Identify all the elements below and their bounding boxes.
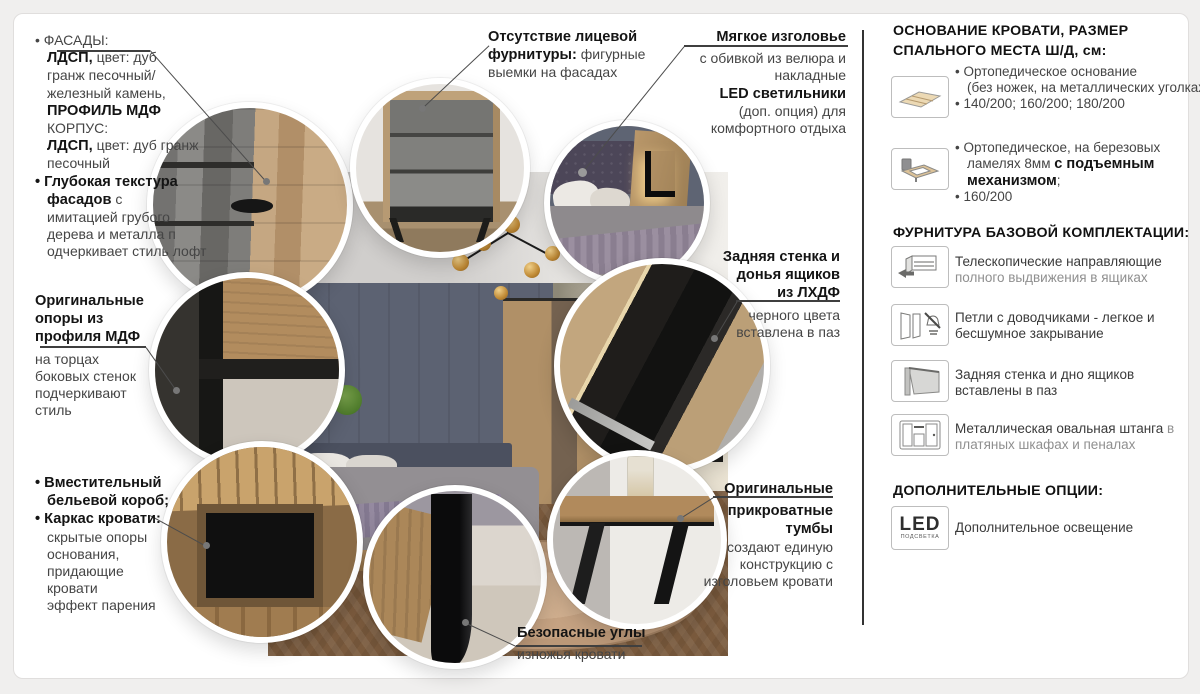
callout-dot [711,335,718,342]
product-infographic-page: • ФАСАДЫ:ЛДСП, цвет: дубгранж песочный/ж… [0,0,1200,694]
led-label: LED [900,516,941,534]
callout-dot [203,542,210,549]
photo-detail [383,91,501,222]
lift-bed-icon [891,148,949,190]
chandelier-icon [524,262,540,278]
panel-heading-line: СПАЛЬНОГО МЕСТА Ш/Д, см: [893,42,1128,62]
panel-heading-line: ОСНОВАНИЕ КРОВАТИ, РАЗМЕР [893,22,1128,42]
photo-detail [431,494,472,666]
panel-heading-hardware: ФУРНИТУРА БАЗОВОЙ КОМПЛЕКТАЦИИ: [893,224,1189,244]
photo-detail [645,151,674,197]
photo-detail [197,504,322,607]
callout-dot [578,168,587,177]
callout-back-wall: Задняя стенка идонья ящиковиз ЛХДФчерног… [688,248,840,341]
photo-detail [476,218,490,242]
callout-dot [263,178,270,185]
photo-detail [627,456,654,502]
panel-row-hinges: Петли с доводчиками - легкое ибесшумное … [955,310,1155,342]
callout-no-hardware: Отсутствие лицевойфурнитуры: фигурныевые… [488,28,645,82]
callout-dot [419,105,426,112]
led-sublabel: ПОДСВЕТКА [901,534,940,540]
photo-detail [162,441,362,511]
callout-bedside-tables: Оригинальныеприкроватныетумбысоздают еди… [683,480,833,590]
panel-heading-base: ОСНОВАНИЕ КРОВАТИ, РАЗМЕР СПАЛЬНОГО МЕСТ… [893,22,1128,61]
callout-dot [462,619,469,626]
callout-safe-corners: Безопасные углыизножья кровати [517,624,645,663]
callout-dot [173,387,180,394]
panel-row-base-2: • Ортопедическое, на березовыхламелях 8м… [955,140,1160,205]
callout-linen-box: • Вместительныйбельевой короб;• Каркас к… [35,474,169,615]
slat-base-icon [891,76,949,118]
panel-heading-options: ДОПОЛНИТЕЛЬНЫЕ ОПЦИИ: [893,482,1103,502]
callout-facades: • ФАСАДЫ:ЛДСП, цвет: дубгранж песочный/ж… [35,32,206,261]
photo-detail [389,218,403,242]
callout-mdf-supports: Оригинальныеопоры изпрофиля МДФна торцах… [35,292,144,419]
panel-row-led: Дополнительное освещение [955,520,1133,536]
panel-row-base-1: • Ортопедическое основание(без ножек, на… [955,64,1200,111]
detail-circle-mdf-supports [149,272,345,468]
photo-detail [231,199,274,213]
detail-circle-linen-box [161,441,363,643]
vertical-divider [862,30,864,625]
wardrobe-rod-icon [891,414,949,456]
chandelier-icon [494,286,508,300]
panel-row-slides: Телескопические направляющиеполного выдв… [955,254,1162,286]
photo-detail [215,272,345,370]
callout-dot [677,515,684,522]
drawer-slides-icon [891,246,949,288]
panel-row-rod: Металлическая овальная штанга вплатяных … [955,421,1174,453]
photo-detail [199,359,345,379]
door-hinge-silent-icon [891,304,949,346]
panel-groove-icon [891,360,949,402]
detail-circle-chest [350,78,530,258]
panel-row-groove: Задняя стенка и дно ящиковвставлены в па… [955,367,1134,399]
callout-soft-headboard: Мягкое изголовьес обивкой из велюра инак… [683,28,846,137]
led-backlight-icon: LED ПОДСВЕТКА [891,506,949,550]
photo-detail [167,607,357,637]
